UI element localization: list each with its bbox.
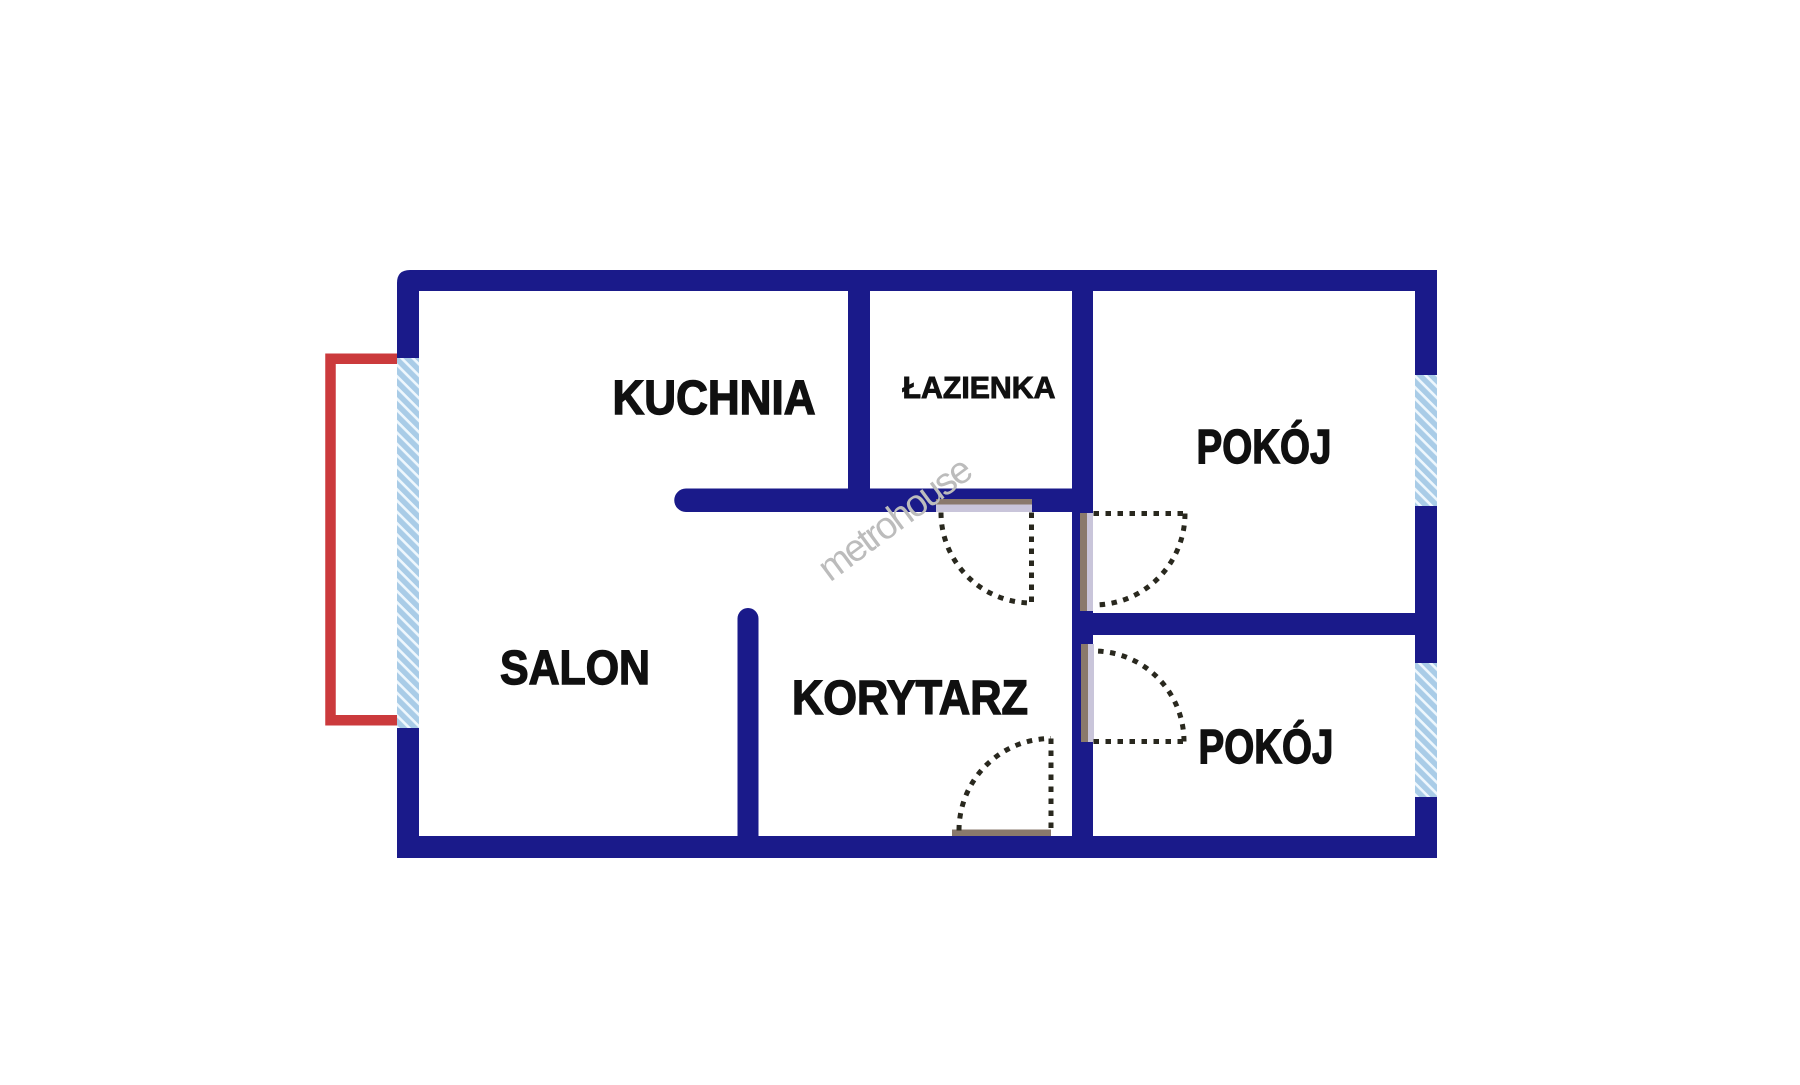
svg-text:SALON: SALON	[500, 642, 650, 695]
svg-text:POKÓJ: POKÓJ	[1199, 719, 1334, 774]
svg-text:KORYTARZ: KORYTARZ	[792, 672, 1028, 725]
svg-text:metrohouse: metrohouse	[810, 449, 979, 590]
svg-text:ŁAZIENKA: ŁAZIENKA	[903, 370, 1056, 405]
svg-text:POKÓJ: POKÓJ	[1197, 419, 1332, 474]
svg-text:KUCHNIA: KUCHNIA	[613, 372, 816, 425]
